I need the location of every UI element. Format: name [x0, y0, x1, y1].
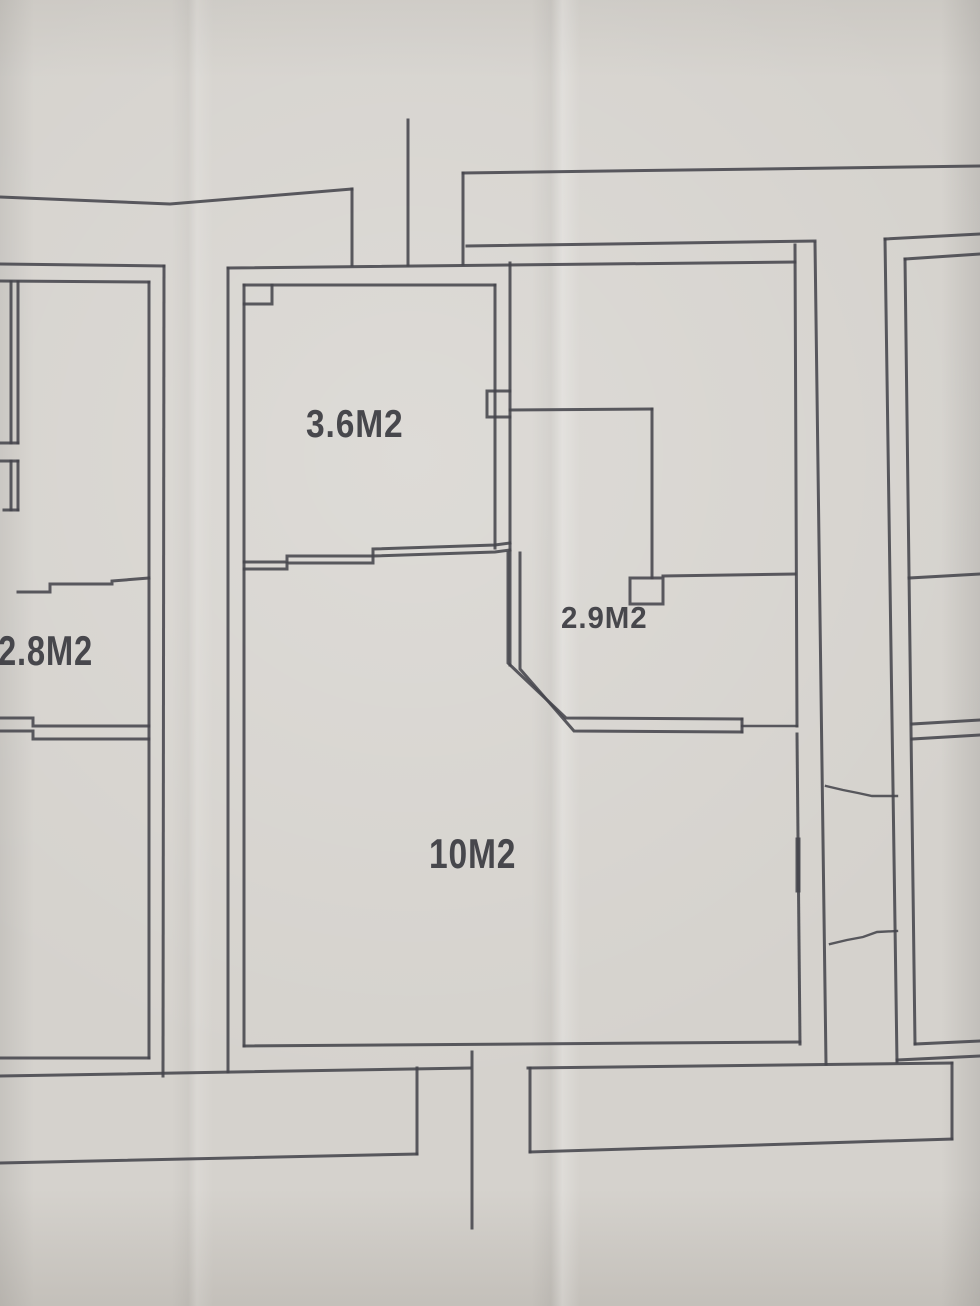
left-unit-divider-upper: [0, 718, 149, 726]
center-unit-right-inner-upper: [795, 245, 797, 726]
main-room-bottom-inner: [244, 1042, 800, 1046]
divider-lower: [244, 550, 510, 569]
left-unit-divider-lower: [0, 731, 149, 739]
right-unit-interior-line: [909, 574, 980, 578]
corner-box: [244, 285, 272, 304]
break-mark-upper: [826, 786, 897, 796]
corridor-break-marks: [826, 786, 897, 944]
floor-plan-photo: 3.6M2 2.9M2 2.8M2 10M2: [0, 0, 980, 1306]
bottom-outer-left: [0, 1068, 470, 1076]
room-label-2-9m2: 2.9M2: [561, 602, 648, 633]
window-tick-1: [0, 443, 18, 461]
floor-plan-drawing: [0, 0, 980, 1306]
top-band-left-line: [0, 189, 352, 204]
right-unit-top-inner: [905, 254, 980, 259]
top-boundary-walls: [0, 120, 980, 265]
room-label-2-8m2: 2.8M2: [0, 630, 93, 672]
right-unit-top-outer: [885, 234, 980, 239]
left-unit-top-inner: [0, 281, 149, 282]
right-unit-divider-lower: [912, 735, 980, 739]
center-unit-walls: [228, 243, 826, 1072]
left-unit-left-inner-a: [11, 282, 18, 443]
right-unit-left-inner: [905, 259, 915, 1044]
top-band-right-line: [463, 166, 980, 173]
left-stub-bottom: [0, 1154, 417, 1163]
break-mark-lower: [830, 931, 897, 944]
room-label-10m2: 10M2: [429, 833, 516, 875]
right-unit-walls: [885, 234, 980, 1062]
bottom-outer-right: [528, 1063, 952, 1068]
center-unit-right-outer: [815, 243, 826, 1064]
bottom-terrace-walls: [0, 1052, 952, 1228]
duct-top-line: [510, 409, 652, 410]
top-band-second-line: [467, 241, 815, 246]
left-unit-left-inner-b: [11, 461, 18, 510]
right-unit-left-outer: [885, 239, 897, 1062]
right-unit-bottom-inner: [915, 1041, 980, 1044]
right-stub-bottom: [530, 1139, 952, 1152]
wall-box: [487, 391, 510, 417]
right-unit-divider-upper: [912, 720, 980, 724]
left-unit-top-outer: [0, 264, 164, 266]
left-unit-right-outer: [163, 266, 164, 1076]
left-room-bottom-step: [18, 578, 149, 592]
room-label-3-6m2: 3.6M2: [306, 405, 404, 444]
right-unit-bottom-outer: [897, 1056, 980, 1060]
hall-right-line: [663, 574, 795, 576]
